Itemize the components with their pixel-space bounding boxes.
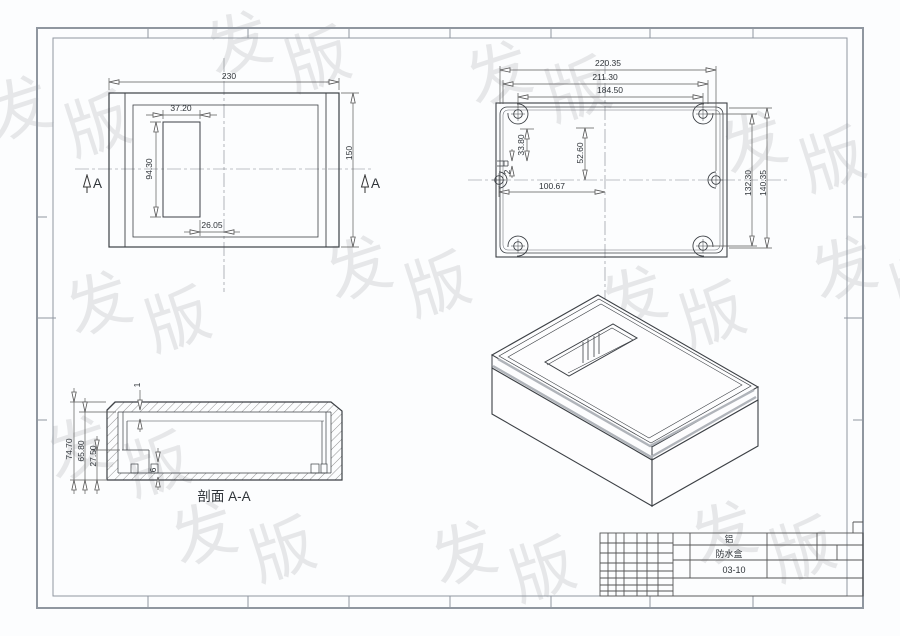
dim-cutout-offset: 26.05 xyxy=(201,220,223,230)
dim-overall-height: 140.35 xyxy=(758,170,768,196)
dim-bottom-thickness: 6 xyxy=(148,467,158,472)
dim-front-height: 150 xyxy=(344,146,354,160)
cad-drawing-canvas: 发 版 xyxy=(0,0,900,636)
title-drawing-no: 03-10 xyxy=(722,565,745,575)
dim-front-width: 230 xyxy=(222,71,236,81)
dim-lid-width: 211.30 xyxy=(592,72,618,82)
dim-overall-width: 220.35 xyxy=(595,58,621,68)
title-part-name: 防水盒 xyxy=(715,548,742,559)
title-material: 铝 xyxy=(725,534,734,544)
dim-hole-span-height: 132.30 xyxy=(743,170,753,196)
section-label-left: A xyxy=(93,176,102,191)
cable-notch xyxy=(497,161,508,166)
dim-cutout-width: 37.20 xyxy=(170,103,192,113)
section-label-right: A xyxy=(371,176,380,191)
dim-hole-to-center: 100.67 xyxy=(539,181,565,191)
drawing-sheet: 发 版 xyxy=(0,0,900,636)
dim-total-height: 74.70 xyxy=(64,438,74,460)
dim-lip: 1 xyxy=(132,382,142,387)
watermark-layer xyxy=(0,0,900,636)
dim-hole-span-width: 184.50 xyxy=(597,85,623,95)
dim-cutout-height: 94.30 xyxy=(144,158,154,180)
dim-inner-height: 65.80 xyxy=(76,440,86,462)
dim-recess-to-center: 52.60 xyxy=(575,142,585,164)
dim-notch-height: 2 xyxy=(502,169,512,174)
section-view-label: 剖面 A-A xyxy=(197,489,250,504)
section-cut-arrows xyxy=(87,175,365,193)
dim-notch-top: 33.80 xyxy=(516,134,526,156)
dim-step-height: 27.50 xyxy=(88,445,98,467)
